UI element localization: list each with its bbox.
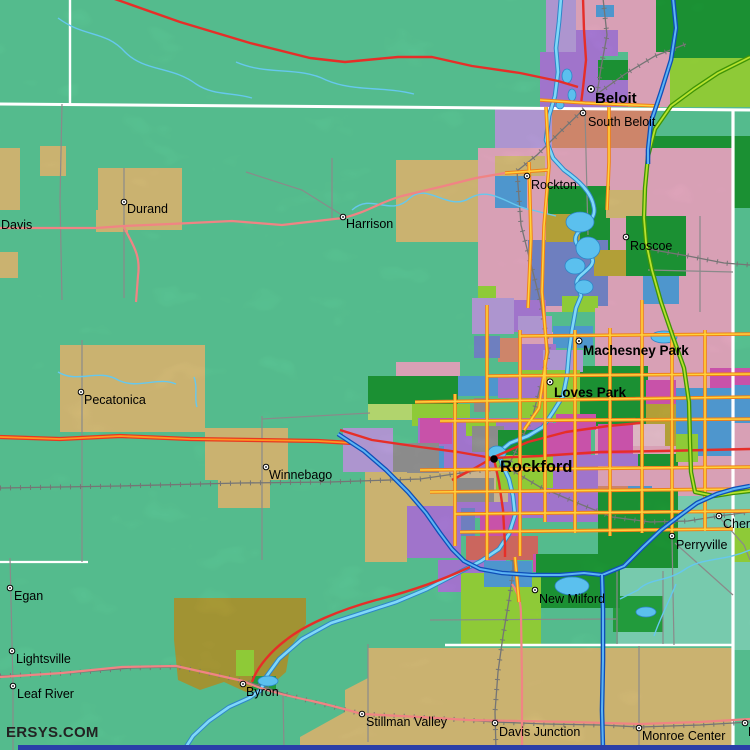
place-label-rockford: Rockford xyxy=(500,459,572,476)
ersys-demographic-map: Beloit South Beloit Rockton Roscoe Mache… xyxy=(0,0,750,750)
place-label-monroe-center: Monroe Center xyxy=(642,730,725,743)
place-label-lightsville: Lightsville xyxy=(16,653,71,666)
place-label-harrison: Harrison xyxy=(346,218,393,231)
place-label-loves-park: Loves Park xyxy=(554,386,626,400)
marker-durand xyxy=(121,199,127,205)
marker-monroe-center xyxy=(636,725,642,731)
place-label-davis-junction: Davis Junction xyxy=(499,726,580,739)
marker-davis-junction xyxy=(492,720,498,726)
marker-byron xyxy=(240,681,246,687)
place-label-machesney-park: Machesney Park xyxy=(583,344,689,358)
marker-machesney-park xyxy=(576,338,582,344)
place-label-rockton: Rockton xyxy=(531,179,577,192)
place-label-new-milford: New Milford xyxy=(539,593,605,606)
marker-perryville xyxy=(669,533,675,539)
marker-rockford xyxy=(490,455,498,463)
marker-f-edge xyxy=(742,720,748,726)
marker-leaf-river xyxy=(10,683,16,689)
place-label-byron: Byron xyxy=(246,686,279,699)
marker-stillman-valley xyxy=(359,711,365,717)
marker-harrison xyxy=(340,214,346,220)
marker-loves-park xyxy=(547,379,553,385)
marker-pecatonica xyxy=(78,389,84,395)
marker-beloit xyxy=(588,86,595,93)
marker-south-beloit xyxy=(580,110,586,116)
place-label-pecatonica: Pecatonica xyxy=(84,394,146,407)
marker-lightsville xyxy=(9,648,15,654)
place-label-stillman-valley: Stillman Valley xyxy=(366,716,447,729)
place-label-roscoe: Roscoe xyxy=(630,240,672,253)
place-label-beloit: Beloit xyxy=(595,91,637,106)
place-label-egan: Egan xyxy=(14,590,43,603)
marker-egan xyxy=(7,585,13,591)
place-label-davis: Davis xyxy=(1,219,32,232)
place-label-durand: Durand xyxy=(127,203,168,216)
place-label-perryville: Perryville xyxy=(676,539,727,552)
place-label-leaf-river: Leaf River xyxy=(17,688,74,701)
marker-roscoe xyxy=(623,234,629,240)
marker-cherry xyxy=(716,513,722,519)
marker-new-milford xyxy=(532,587,538,593)
marker-rockton xyxy=(524,173,530,179)
ersys-watermark: ERSYS.COM xyxy=(6,724,99,741)
marker-winnebago xyxy=(263,464,269,470)
place-label-cherry: Cherry xyxy=(723,518,750,531)
bottom-bar xyxy=(18,745,750,750)
map-canvas xyxy=(0,0,750,750)
place-label-winnebago: Winnebago xyxy=(269,469,332,482)
place-label-south-beloit: South Beloit xyxy=(588,116,655,129)
